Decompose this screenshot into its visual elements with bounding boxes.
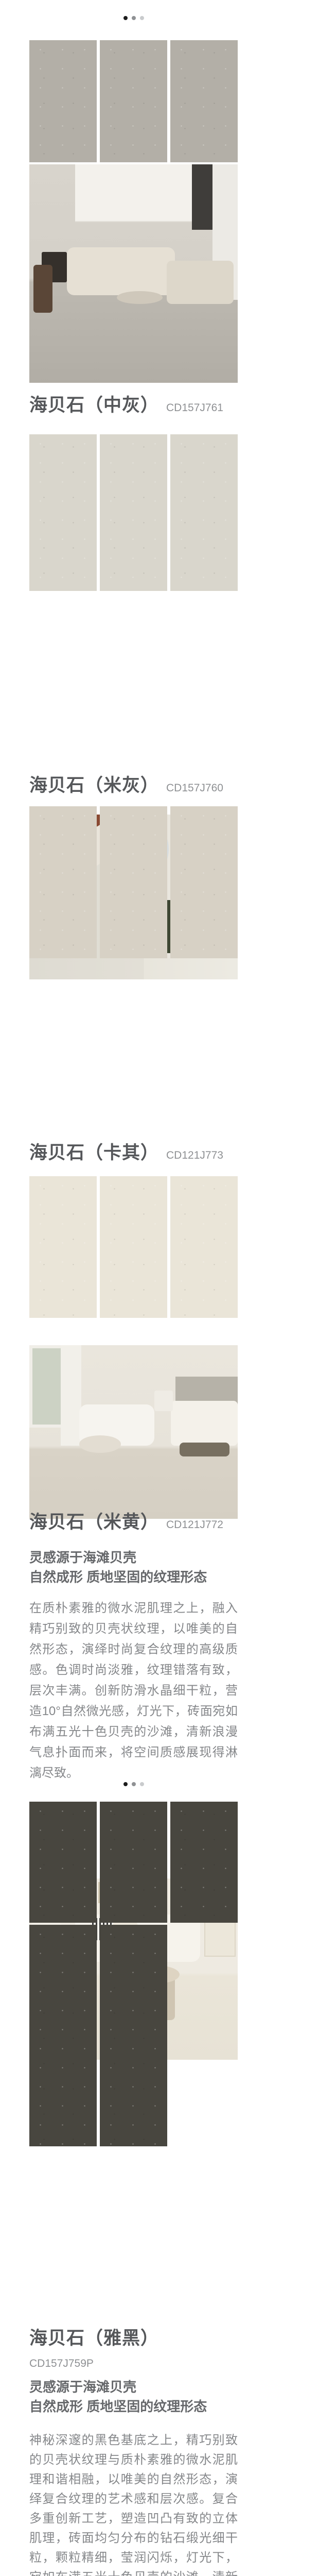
tile-swatch — [29, 434, 97, 591]
product-title-row: 海贝石（卡其）CD121J773 — [29, 1138, 238, 1164]
product-description: 在质朴素雅的微水泥肌理之上，融入精巧别致的贝壳状纹理，以唯美的自然形态，演绎时尚… — [29, 1598, 238, 1784]
carousel-indicator-2 — [29, 1782, 238, 1787]
carousel-dot[interactable] — [140, 1782, 144, 1786]
tile-swatch — [100, 1176, 167, 1318]
tile-swatch-row — [29, 806, 238, 958]
subtitle-line: 自然成形 质地坚固的纹理形态 — [29, 1567, 238, 1587]
tile-swatch — [170, 806, 238, 958]
bed-shape — [171, 1401, 238, 1446]
coffee-table-shape — [117, 291, 163, 304]
nightstand-shape — [154, 1391, 173, 1411]
product-title-row: 海贝石（米黄）CD121J772 — [29, 1507, 238, 1534]
tile-swatch-row — [29, 1176, 238, 1318]
subtitle-line: 自然成形 质地坚固的纹理形态 — [29, 2397, 238, 2416]
coffee-table-shape — [79, 1435, 121, 1453]
armchair-shape — [33, 265, 52, 313]
carousel-dot[interactable] — [132, 16, 136, 20]
product-name: 海贝石（卡其） — [29, 1143, 159, 1163]
carousel-dot-active[interactable] — [123, 1782, 128, 1786]
product-title-row: 海贝石（中灰）CD157J761 — [29, 391, 238, 417]
subtitle-line: 灵感源于海滩贝壳 — [29, 2377, 238, 2397]
tile-swatch — [170, 1802, 238, 1923]
tile-swatch — [29, 1802, 97, 1923]
product-name: 海贝石（米灰） — [29, 775, 159, 795]
room-photo-living-gray — [29, 164, 238, 383]
tile-swatch-row — [29, 1925, 238, 2146]
tile-swatch — [29, 1925, 97, 2146]
product-subtitle: 灵感源于海滩贝壳 自然成形 质地坚固的纹理形态 — [29, 1548, 238, 1587]
tile-swatch — [100, 806, 167, 958]
tile-swatch — [100, 40, 167, 162]
tile-swatch — [29, 806, 97, 958]
carousel-dot-active[interactable] — [123, 16, 128, 20]
tile-swatch — [100, 1925, 167, 2146]
product-title-row: 海贝石（米灰）CD157J760 — [29, 771, 238, 797]
product-code: CD157J760 — [166, 782, 223, 794]
tile-swatch — [100, 434, 167, 591]
product-name: 海贝石（雅黑） — [29, 2328, 159, 2348]
tile-swatch — [170, 434, 238, 591]
bench-shape — [180, 1443, 229, 1456]
product-name: 海贝石（米黄） — [29, 1512, 159, 1532]
carousel-dot[interactable] — [132, 1782, 136, 1786]
tile-swatch — [29, 40, 97, 162]
sofa-shape — [67, 247, 175, 295]
tile-swatch-row — [29, 434, 238, 591]
product-code: CD157J759P — [29, 2358, 238, 2370]
carousel-dot[interactable] — [140, 16, 144, 20]
product-code: CD157J761 — [166, 402, 223, 414]
product-code: CD121J772 — [166, 1519, 223, 1531]
curtain-shape — [61, 1345, 82, 1446]
subtitle-line: 灵感源于海滩贝壳 — [29, 1548, 238, 1567]
room-photo-bedroom — [29, 1345, 238, 1519]
tile-swatch — [100, 1802, 167, 1923]
wall-cabinet-shape — [75, 164, 192, 222]
product-title-row: 海贝石（雅黑） — [29, 2324, 238, 2350]
tile-swatch — [170, 1176, 238, 1318]
carousel-indicator-1 — [29, 15, 238, 21]
product-name: 海贝石（中灰） — [29, 395, 159, 415]
tile-swatch-row — [29, 40, 238, 162]
product-code: CD121J773 — [166, 1149, 223, 1161]
shelf-shape — [192, 164, 213, 230]
tile-swatch-row — [29, 1802, 238, 1923]
product-subtitle: 灵感源于海滩贝壳 自然成形 质地坚固的纹理形态 — [29, 2377, 238, 2416]
product-description: 神秘深邃的黑色基底之上，精巧别致的贝壳状纹理与质朴素雅的微水泥肌理和谐相融，以唯… — [29, 2431, 238, 2576]
sofa-chaise-shape — [167, 261, 234, 304]
tile-swatch — [29, 1176, 97, 1318]
tile-swatch — [170, 40, 238, 162]
catalog-page: 海贝石（中灰）CD157J761 海贝石（米灰）CD157J760 — [0, 0, 319, 2576]
